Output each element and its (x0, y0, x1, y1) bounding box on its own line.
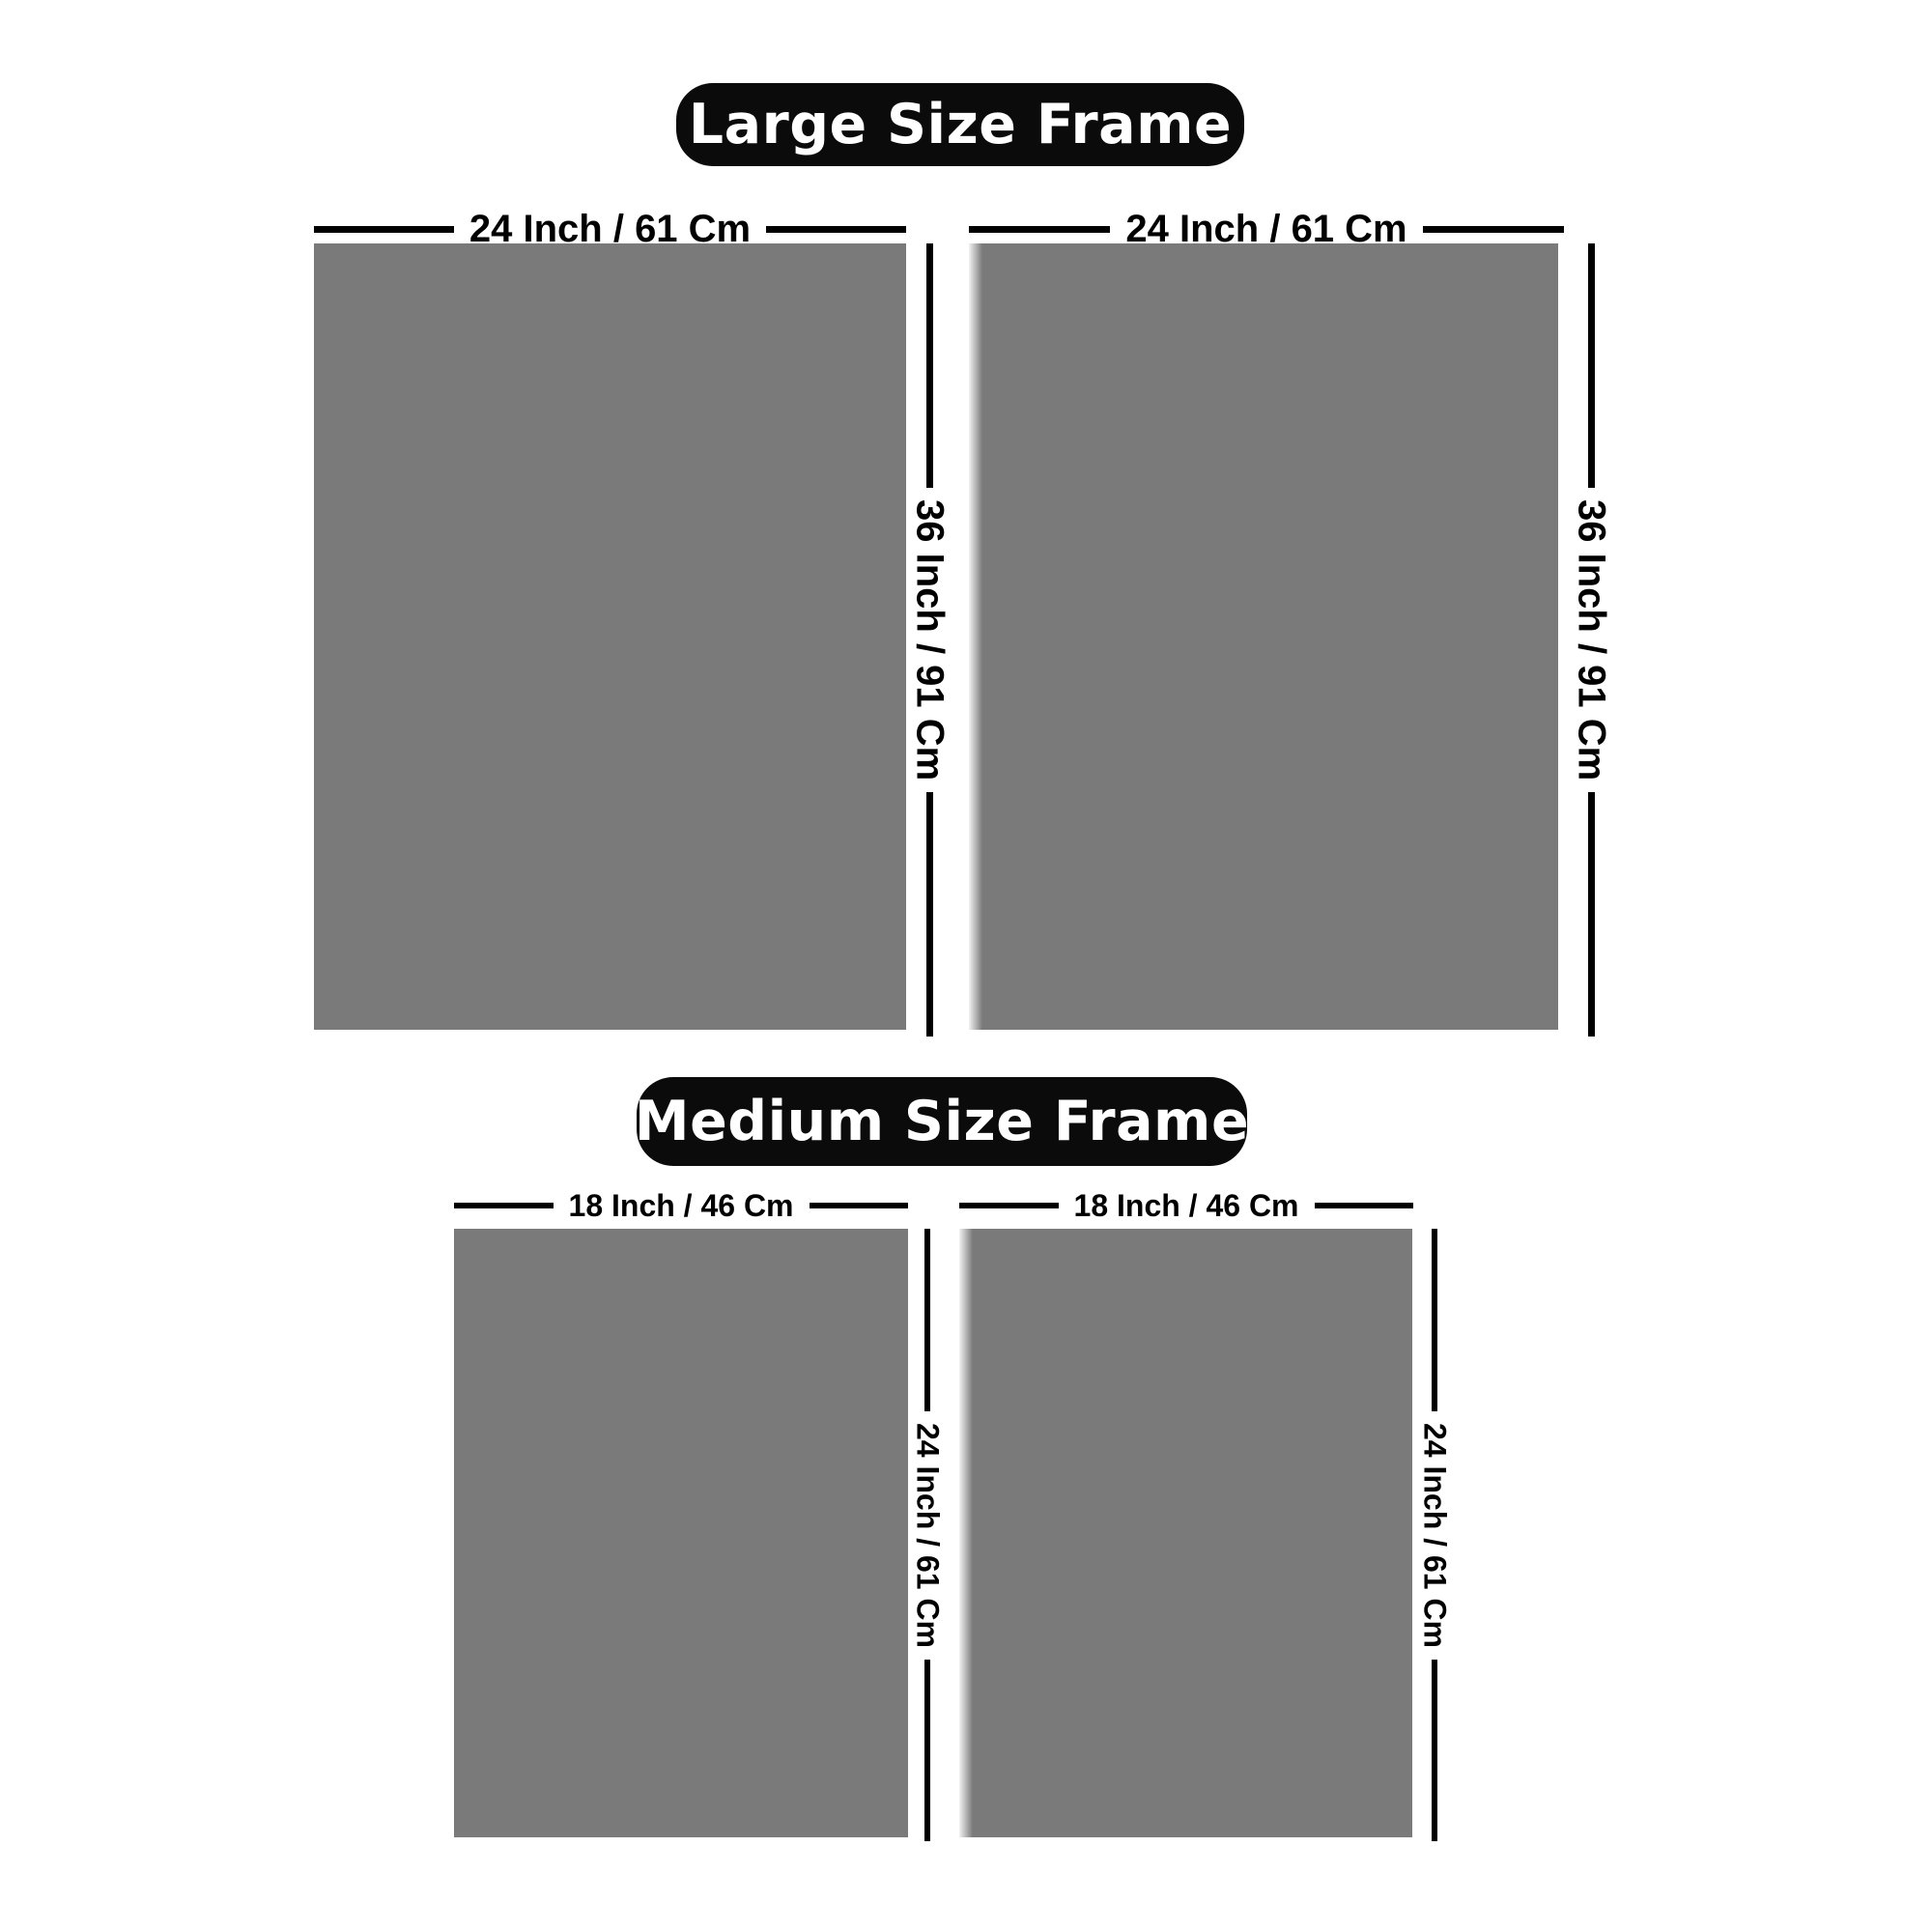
dimension-line (959, 1203, 1059, 1208)
dimension-line (766, 226, 906, 233)
height-dimension-label: 36 Inch / 91 Cm (908, 499, 952, 781)
height-dimension-medium-middle: 24 Inch / 61 Cm (922, 1229, 933, 1841)
dimension-line (314, 226, 454, 233)
dimension-line (1432, 1229, 1437, 1411)
width-dimension-medium-left: 18 Inch / 46 Cm (454, 1188, 908, 1223)
frame-placeholder-medium-right (959, 1229, 1412, 1837)
dimension-line (454, 1203, 554, 1208)
dimension-line (924, 1229, 930, 1411)
height-dimension-label: 24 Inch / 61 Cm (1417, 1423, 1453, 1648)
medium-size-title: Medium Size Frame (635, 1090, 1249, 1153)
dimension-line (810, 1203, 909, 1208)
height-dimension-label: 36 Inch / 91 Cm (1570, 499, 1613, 781)
large-size-title: Large Size Frame (689, 93, 1232, 156)
frame-placeholder-large-left (314, 243, 906, 1030)
dimension-line (1423, 226, 1564, 233)
dimension-line (926, 243, 933, 488)
medium-size-title-pill: Medium Size Frame (637, 1077, 1247, 1166)
height-dimension-large-right: 36 Inch / 91 Cm (1584, 243, 1598, 1037)
size-guide-canvas: Large Size Frame 24 Inch / 61 Cm 24 Inch… (0, 0, 1932, 1932)
width-dimension-label: 18 Inch / 46 Cm (569, 1188, 794, 1224)
width-dimension-label: 18 Inch / 46 Cm (1074, 1188, 1299, 1224)
dimension-line (926, 792, 933, 1037)
dimension-line (1588, 243, 1595, 488)
height-dimension-label: 24 Inch / 61 Cm (910, 1423, 946, 1648)
frame-placeholder-large-right (969, 243, 1558, 1030)
frame-placeholder-medium-left (454, 1229, 908, 1837)
height-dimension-medium-right: 24 Inch / 61 Cm (1429, 1229, 1440, 1841)
dimension-line (924, 1660, 930, 1842)
height-dimension-large-middle: 36 Inch / 91 Cm (923, 243, 936, 1037)
large-size-title-pill: Large Size Frame (676, 83, 1244, 166)
dimension-line (1432, 1660, 1437, 1842)
dimension-line (969, 226, 1110, 233)
width-dimension-medium-right: 18 Inch / 46 Cm (959, 1188, 1413, 1223)
dimension-line (1315, 1203, 1414, 1208)
dimension-line (1588, 792, 1595, 1037)
